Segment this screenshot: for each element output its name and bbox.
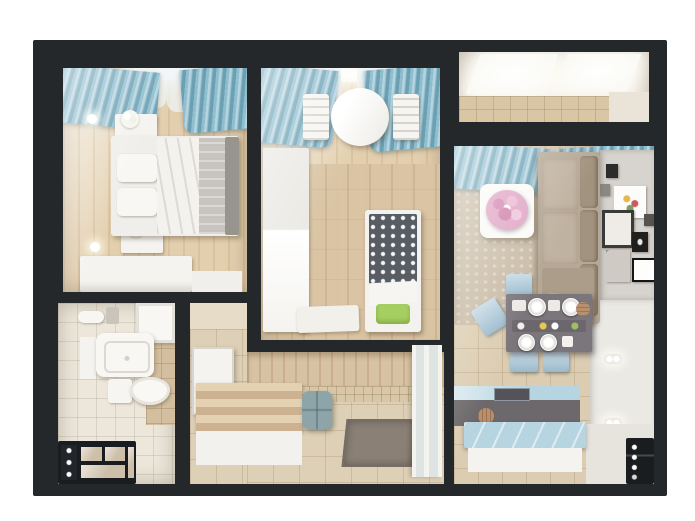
- back-cushion: [580, 210, 598, 262]
- balcony-wall: [609, 92, 649, 122]
- balcony-tile-floor: [459, 96, 609, 122]
- picture-frame: [600, 184, 610, 196]
- napkin: [512, 300, 526, 311]
- plate: [540, 334, 557, 351]
- dining-chair: [506, 274, 532, 296]
- wall-cabinet: [106, 307, 119, 324]
- picture-frame: [644, 214, 654, 226]
- toilet-tank: [108, 379, 132, 403]
- chair: [393, 94, 419, 140]
- picture-frame: [606, 250, 630, 282]
- doormat: [341, 419, 418, 467]
- gallery-wall: [600, 150, 654, 300]
- picture-frame: [632, 232, 648, 252]
- plate: [518, 334, 535, 351]
- picture-frame: [606, 164, 618, 178]
- wall-sconce: [90, 242, 100, 252]
- dining-table: [506, 294, 592, 352]
- back-cushion: [580, 156, 598, 208]
- flower-vase: [121, 110, 139, 128]
- seat-cushion: [542, 212, 578, 264]
- storage-box: [105, 447, 125, 461]
- bed-footboard: [225, 137, 239, 235]
- hallway: [190, 303, 444, 484]
- storage-box: [81, 465, 125, 478]
- balcony: [459, 52, 649, 122]
- double-bed: [111, 136, 239, 236]
- sink-basin: [104, 341, 150, 373]
- bench-wood-top: [196, 383, 302, 431]
- cup: [562, 336, 573, 347]
- sink-cabinet: [80, 337, 96, 379]
- floor-plan-render: [0, 0, 695, 521]
- bedroom: [63, 68, 247, 292]
- table-runner: [512, 320, 586, 332]
- dining-chair: [510, 352, 538, 372]
- cutting-board: [576, 302, 590, 316]
- kitchen-island: [464, 422, 586, 472]
- hallway-bench: [196, 383, 302, 465]
- glass-door: [412, 345, 442, 477]
- picture-frame: [602, 210, 634, 248]
- black-storage-unit: [58, 441, 136, 484]
- living-kitchen: [454, 146, 654, 484]
- wall-sconce: [604, 354, 622, 364]
- kitchen-counter: [454, 386, 580, 426]
- pillow: [117, 188, 157, 216]
- plate: [528, 298, 546, 316]
- seat-cushion: [542, 158, 578, 210]
- flower-bouquet: [486, 190, 528, 230]
- storage-box: [81, 447, 102, 461]
- curtain-right: [179, 68, 247, 134]
- picture-frame: [632, 258, 654, 282]
- folded-blanket: [199, 138, 225, 234]
- dresser: [80, 256, 192, 292]
- pillow: [117, 154, 157, 182]
- low-cabinet: [192, 271, 242, 292]
- dining-chair: [543, 352, 569, 372]
- round-table: [331, 88, 389, 146]
- bathroom-sink: [96, 333, 154, 377]
- wall-sconce: [87, 114, 97, 124]
- island-front: [468, 448, 582, 472]
- storage-dots: [61, 445, 77, 480]
- bathroom: [58, 303, 175, 484]
- storage-box: [128, 447, 134, 478]
- kids-room: [261, 68, 440, 340]
- bench-front: [196, 431, 302, 465]
- towel-rail: [78, 311, 104, 323]
- island-top: [464, 422, 586, 448]
- pouf: [302, 391, 332, 429]
- napkin: [548, 300, 560, 311]
- wall-face: [190, 303, 247, 329]
- intercom-panel: [626, 438, 654, 484]
- kitchen-sink: [494, 388, 530, 401]
- patterned-blanket: [369, 214, 417, 284]
- balcony-window: [466, 54, 559, 94]
- chair: [303, 94, 329, 140]
- balcony-window: [554, 54, 641, 90]
- folded-sheet: [369, 281, 417, 306]
